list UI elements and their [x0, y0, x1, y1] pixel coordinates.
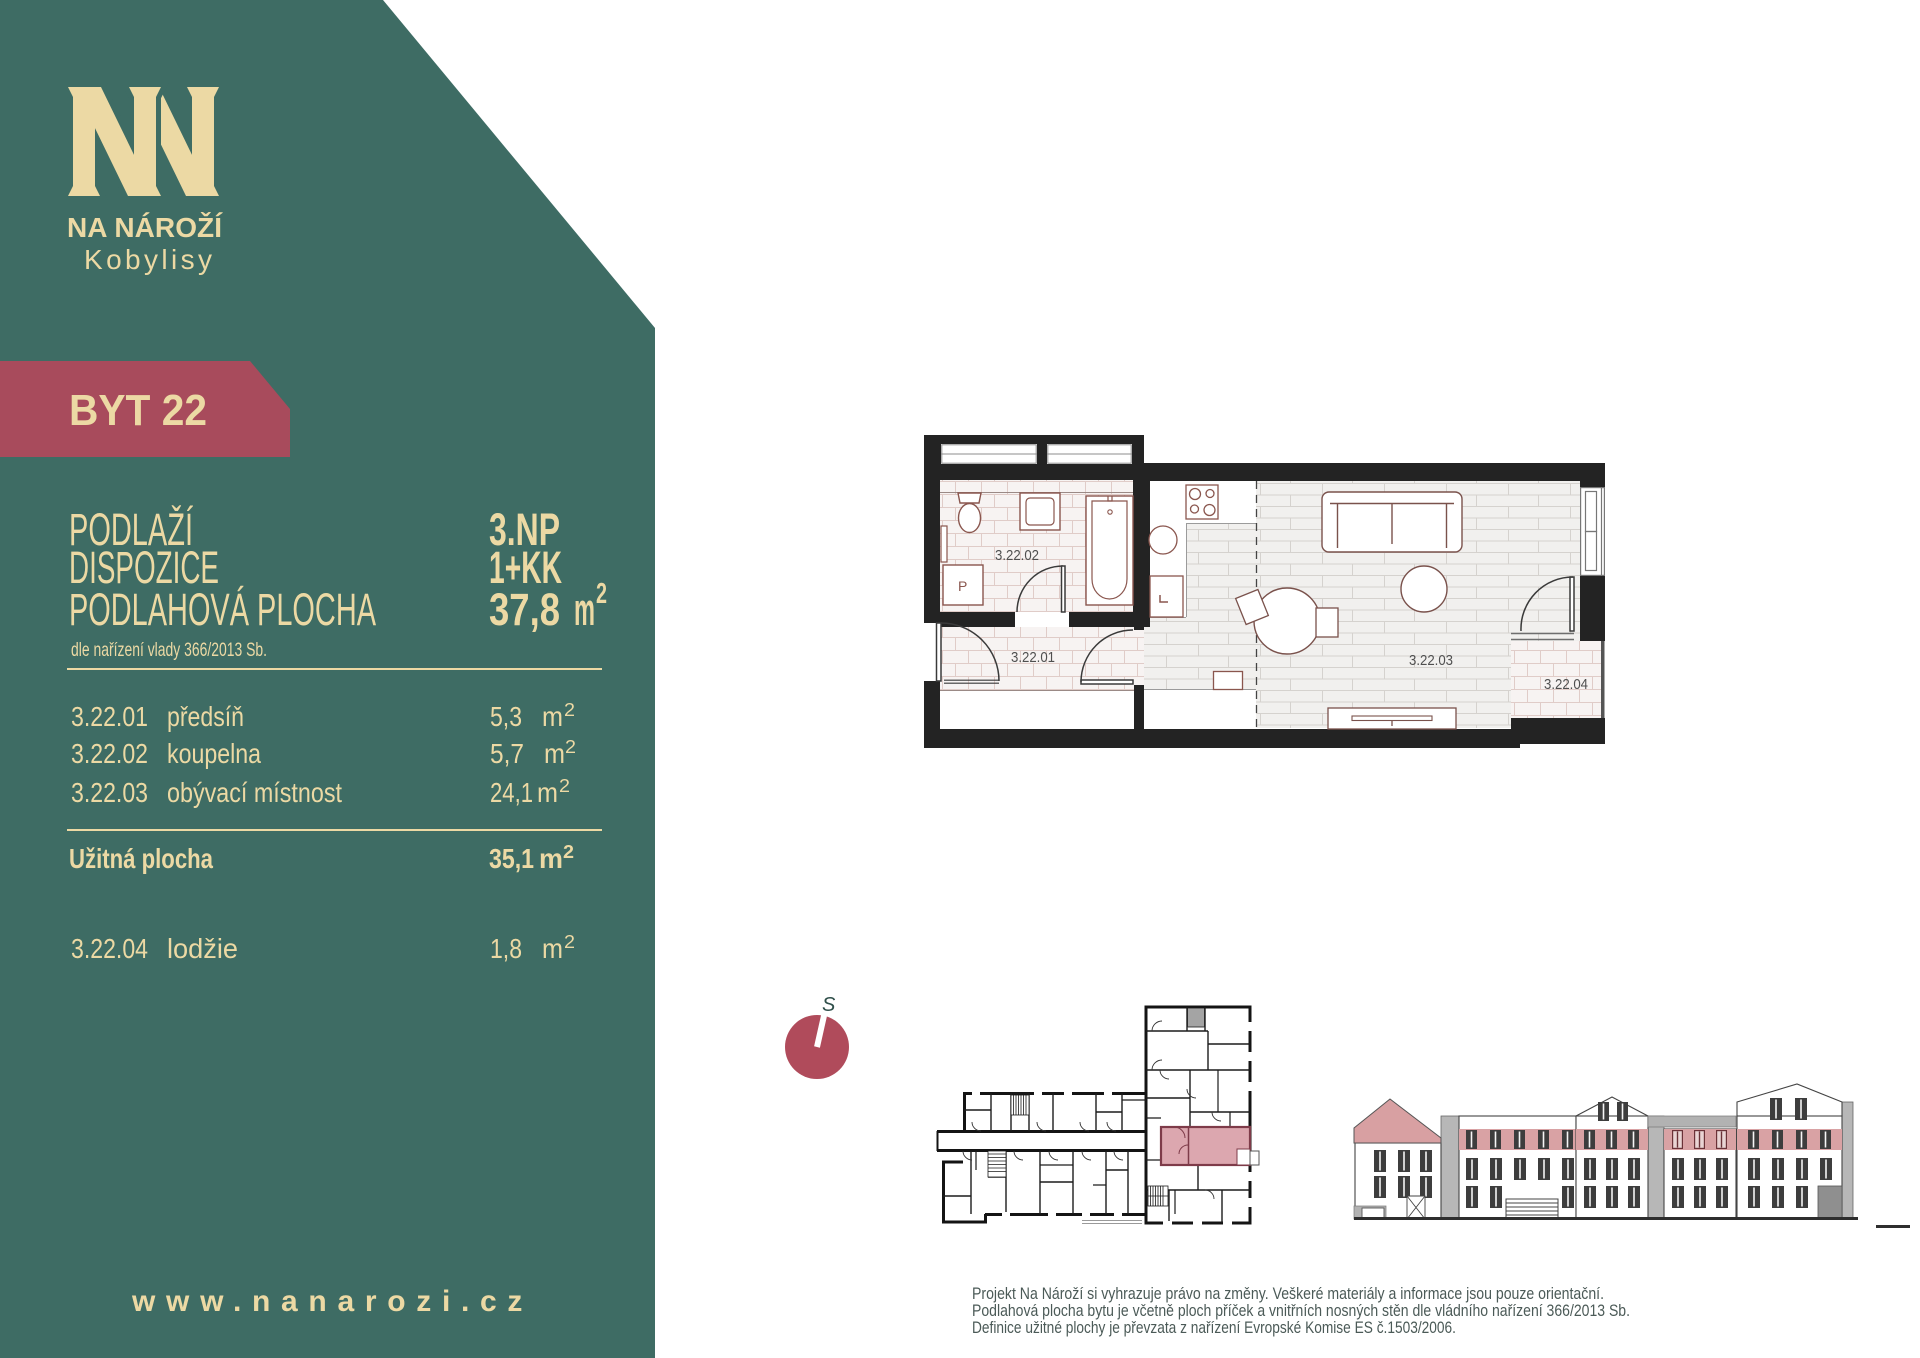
svg-text:m: m [537, 777, 558, 808]
svg-text:m: m [574, 584, 595, 635]
svg-text:37,8: 37,8 [489, 584, 560, 635]
svg-text:Podlahová plocha bytu je včetn: Podlahová plocha bytu je včetně ploch př… [972, 1302, 1630, 1320]
svg-text:Užitná plocha: Užitná plocha [69, 843, 213, 874]
svg-text:2: 2 [565, 737, 576, 757]
svg-text:3.22.03: 3.22.03 [71, 777, 148, 808]
svg-text:2: 2 [596, 578, 607, 610]
svg-text:lodžie: lodžie [167, 933, 238, 964]
svg-text:3.22.01: 3.22.01 [1011, 649, 1055, 666]
svg-text:3.22.02: 3.22.02 [71, 738, 148, 769]
svg-text:Definice užitné plochy je přev: Definice užitné plochy je převzata z nař… [972, 1319, 1456, 1337]
svg-text:koupelna: koupelna [167, 738, 261, 769]
svg-text:2: 2 [563, 842, 574, 862]
svg-text:m: m [542, 933, 563, 964]
svg-text:S: S [822, 994, 836, 1016]
svg-text:1,8: 1,8 [490, 933, 522, 964]
svg-text:dle nařízení vlady 366/2013 Sb: dle nařízení vlady 366/2013 Sb. [71, 639, 267, 661]
svg-text:m: m [539, 843, 563, 874]
svg-text:Kobylisy: Kobylisy [84, 244, 215, 275]
svg-text:5,3: 5,3 [490, 701, 522, 732]
svg-text:24,1: 24,1 [490, 777, 533, 808]
svg-text:m: m [544, 738, 565, 769]
svg-text:P: P [958, 578, 967, 594]
svg-text:předsíň: předsíň [167, 701, 244, 732]
svg-text:www.nanarozi.cz: www.nanarozi.cz [131, 1285, 533, 1318]
svg-text:3.22.01: 3.22.01 [71, 701, 148, 732]
svg-text:2: 2 [564, 700, 575, 720]
svg-text:2: 2 [559, 776, 570, 796]
svg-text:BYT 22: BYT 22 [69, 386, 207, 435]
svg-text:NA NÁROŽÍ: NA NÁROŽÍ [67, 212, 223, 243]
svg-text:3.22.02: 3.22.02 [995, 547, 1039, 564]
svg-text:5,7: 5,7 [490, 738, 524, 769]
svg-text:3.22.04: 3.22.04 [1544, 676, 1588, 693]
svg-text:m: m [542, 701, 563, 732]
svg-text:3.22.03: 3.22.03 [1409, 652, 1453, 669]
svg-text:PODLAHOVÁ PLOCHA: PODLAHOVÁ PLOCHA [69, 584, 376, 635]
svg-text:obývací místnost: obývací místnost [167, 777, 342, 808]
svg-text:Projekt Na Nároží si vyhrazuje: Projekt Na Nároží si vyhrazuje právo na … [972, 1285, 1604, 1303]
svg-text:3.22.04: 3.22.04 [71, 933, 148, 964]
svg-text:2: 2 [564, 932, 575, 952]
svg-text:35,1: 35,1 [489, 843, 534, 874]
